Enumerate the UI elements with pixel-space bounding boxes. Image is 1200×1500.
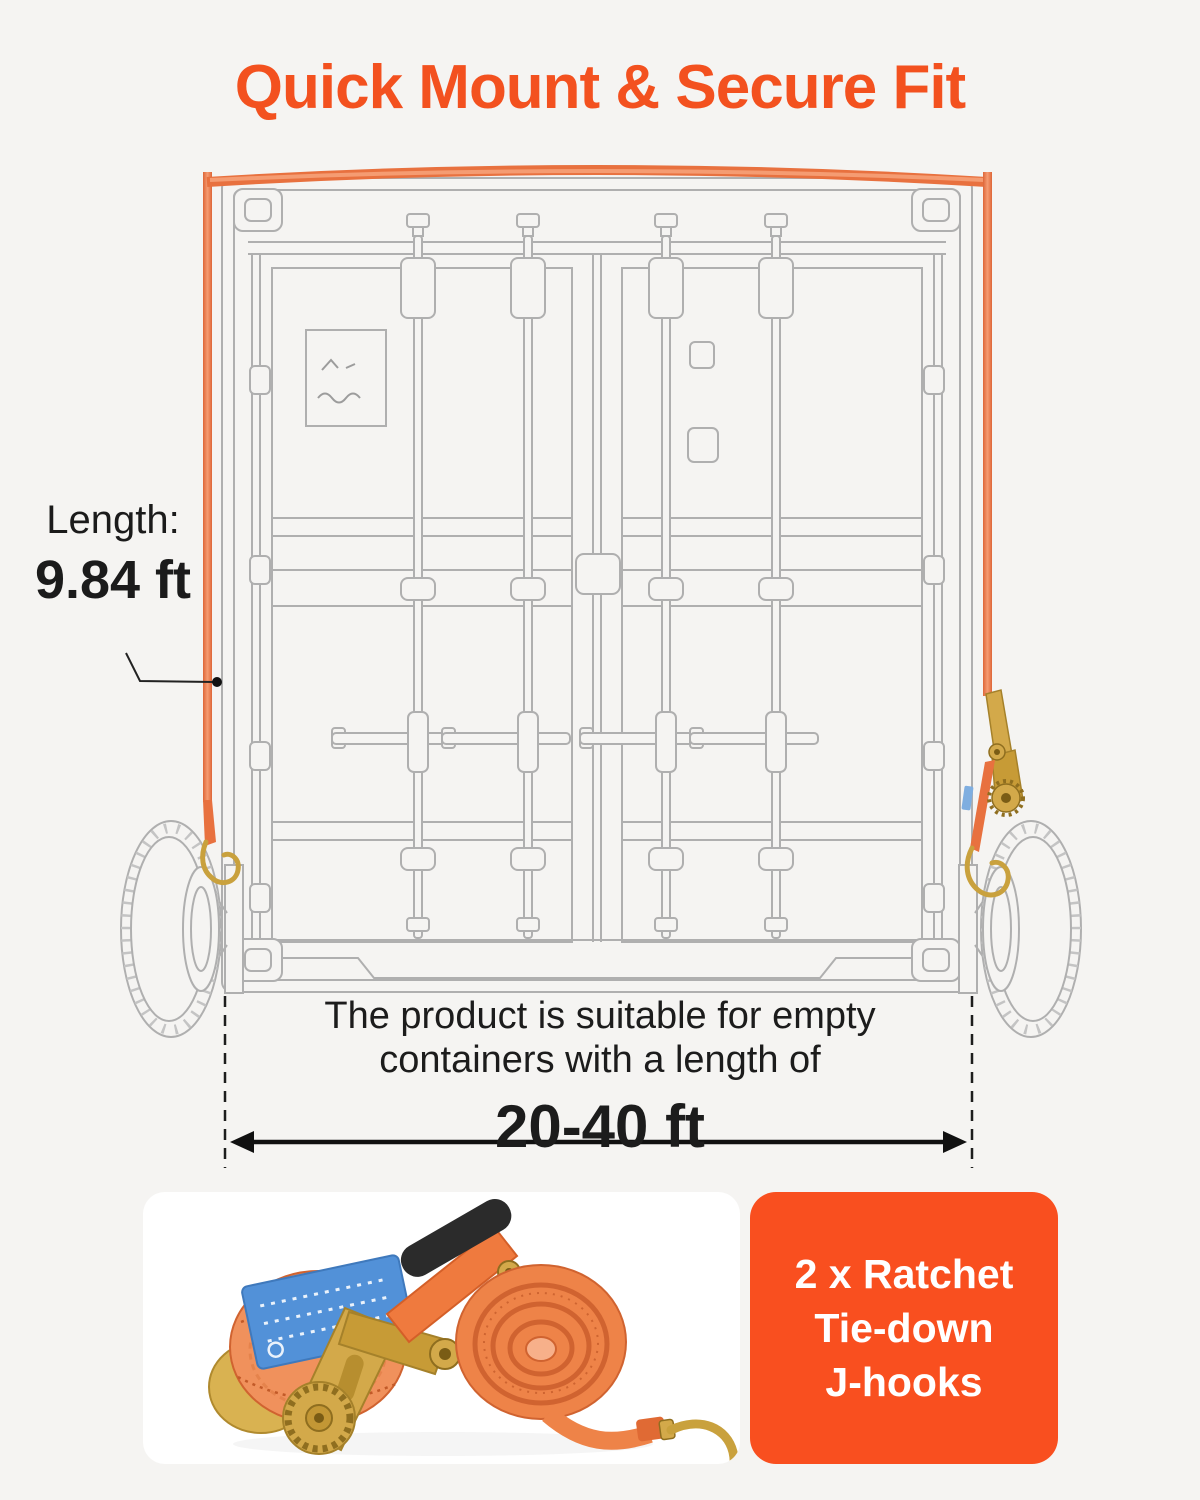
- j-hook-photo-icon: [671, 1424, 734, 1464]
- container-outline: [222, 178, 972, 992]
- length-label: Length:: [18, 498, 208, 543]
- included-line-2: Tie-down: [814, 1301, 993, 1355]
- suitability-note: The product is suitable for empty contai…: [0, 994, 1200, 1161]
- length-value: 9.84 ft: [18, 549, 208, 611]
- side-post-tabs: [250, 366, 944, 912]
- length-range-value: 20-40 ft: [0, 1092, 1200, 1161]
- infographic-page: Quick Mount & Secure Fit: [0, 0, 1200, 1500]
- length-callout: Length: 9.84 ft: [18, 498, 208, 611]
- note-line-1: The product is suitable for empty: [0, 994, 1200, 1038]
- ratchet-strap-right: [983, 172, 992, 696]
- strap-tail: [548, 1414, 675, 1442]
- included-line-3: J-hooks: [825, 1355, 982, 1409]
- ratchet-strap-photo: [143, 1192, 740, 1464]
- strap-coil: [456, 1265, 626, 1419]
- included-line-1: 2 x Ratchet: [795, 1247, 1014, 1301]
- note-line-2: containers with a length of: [0, 1038, 1200, 1082]
- product-photo-card: [143, 1192, 740, 1464]
- included-items-card: 2 x Ratchet Tie-down J-hooks: [750, 1192, 1058, 1464]
